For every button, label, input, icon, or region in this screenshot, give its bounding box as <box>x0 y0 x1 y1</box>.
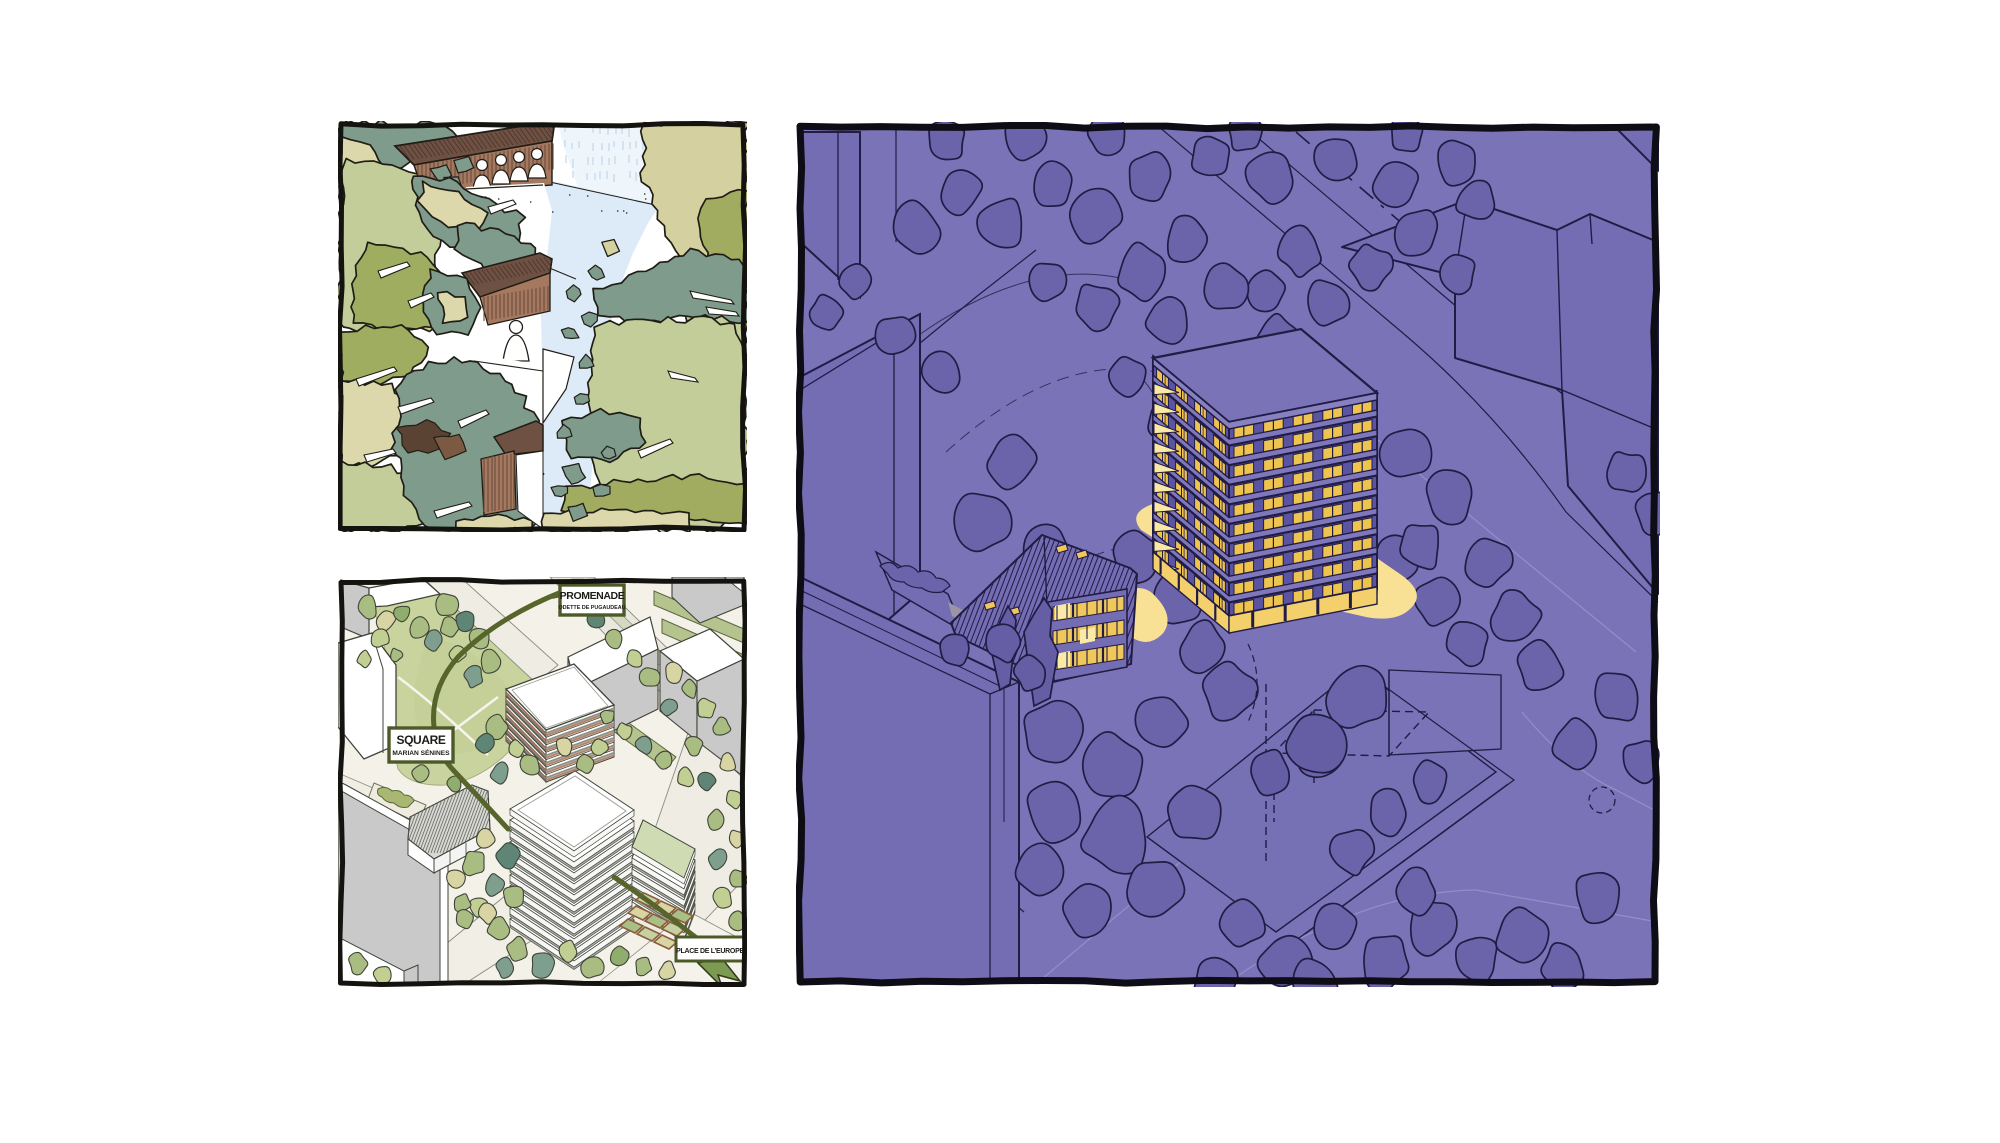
svg-text:PLACE DE L’EUROPE: PLACE DE L’EUROPE <box>676 948 744 955</box>
svg-text:MARIAN SÉNINES: MARIAN SÉNINES <box>392 748 450 757</box>
svg-text:PROMENADE: PROMENADE <box>560 590 625 602</box>
svg-text:ODETTE DE PUGAUDEAU: ODETTE DE PUGAUDEAU <box>558 605 625 611</box>
svg-text:SQUARE: SQUARE <box>397 733 446 747</box>
